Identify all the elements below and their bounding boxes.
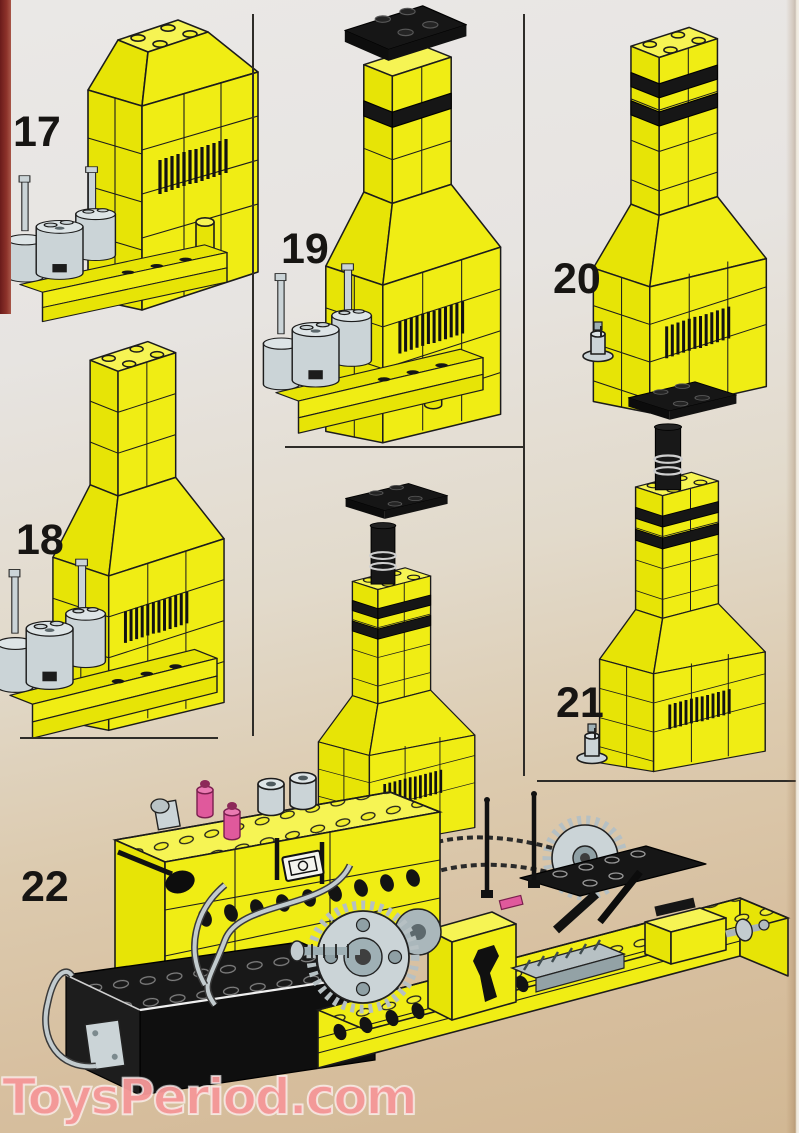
battery-connector (85, 1020, 125, 1070)
toysperiod-watermark: ToysPeriod.com (2, 1070, 416, 1125)
figure-step-17 (18, 4, 268, 344)
step-22-label: 22 (21, 866, 69, 909)
step-19-label: 19 (281, 228, 329, 271)
divider-horizontal-under-21 (537, 780, 796, 782)
step-20-label: 20 (553, 258, 601, 301)
figure-step-20 (540, 14, 799, 414)
pink-cylinder-1 (197, 780, 213, 818)
divider-vertical-left (252, 14, 254, 736)
pink-cylinder-2 (224, 802, 240, 840)
instruction-page: 17 18 19 20 21 22 (0, 0, 799, 1133)
step-18-label: 18 (16, 519, 64, 562)
step-17-label: 17 (13, 111, 61, 154)
page-right-edge-shadow (786, 0, 799, 1133)
grey-round-bricks (258, 773, 316, 816)
divider-horizontal-under-18 (20, 737, 218, 739)
tap-part (151, 799, 180, 830)
divider-vertical-right (523, 14, 525, 776)
step-21-label: 21 (556, 682, 604, 725)
page-spine-red-strip (0, 0, 11, 314)
divider-horizontal-under-19 (285, 446, 523, 448)
